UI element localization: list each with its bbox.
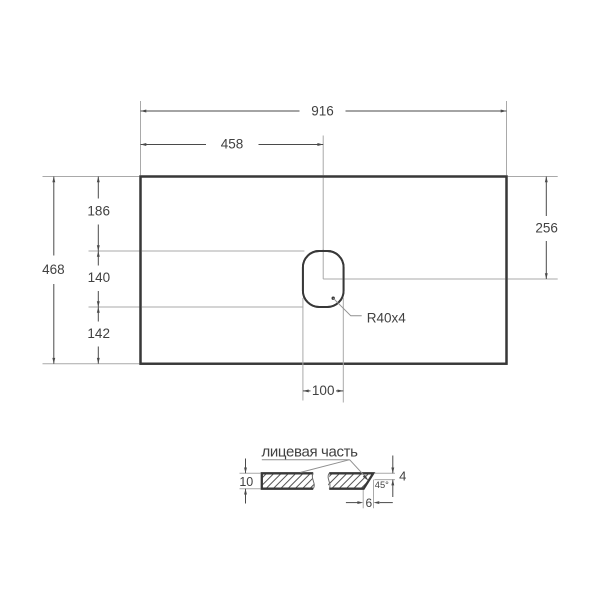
svg-text:916: 916	[311, 103, 334, 118]
svg-text:лицевая часть: лицевая часть	[262, 444, 359, 461]
svg-text:4: 4	[399, 468, 406, 483]
svg-text:100: 100	[312, 383, 335, 398]
svg-text:45°: 45°	[375, 480, 389, 490]
svg-text:R40x4: R40x4	[367, 310, 407, 325]
svg-text:10: 10	[239, 475, 253, 489]
svg-text:6: 6	[365, 496, 372, 510]
svg-text:140: 140	[88, 270, 111, 285]
svg-text:186: 186	[87, 204, 110, 219]
svg-text:142: 142	[87, 326, 110, 341]
svg-text:458: 458	[221, 137, 244, 152]
svg-text:468: 468	[42, 262, 65, 277]
svg-text:256: 256	[535, 221, 558, 236]
